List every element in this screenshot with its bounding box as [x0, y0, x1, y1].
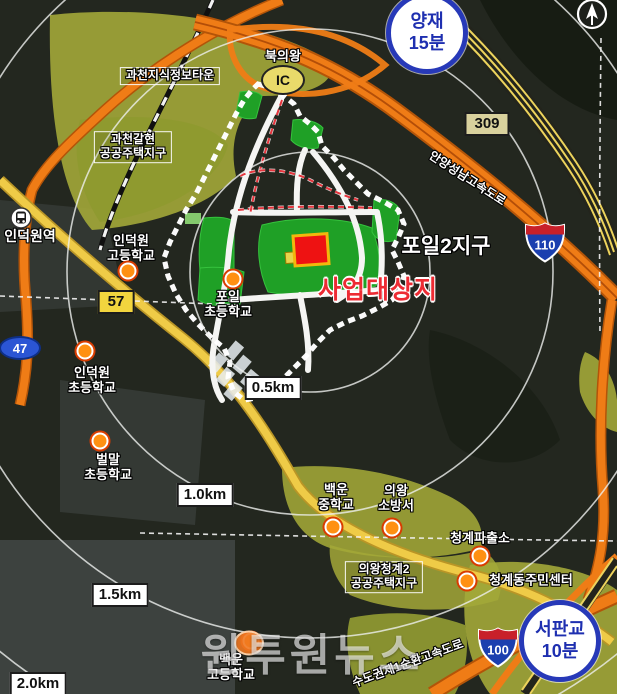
school-label-poil-elem: 포일 초등학교: [204, 290, 252, 320]
school-label-beolmal-elem: 벌말 초등학교: [84, 453, 132, 483]
zone-label-gwacheon-galhyeon: 과천갈현 공공주택지구: [94, 131, 172, 163]
marker-indeogwon-high: [120, 263, 137, 280]
label-cheonggye-community-center: 청계동주민센터: [489, 574, 573, 589]
school-label-line: 초등학교: [68, 381, 116, 396]
route-shield-309: 309: [464, 112, 509, 136]
school-label-line: 고등학교: [107, 249, 155, 264]
school-label-line: 백운: [318, 483, 354, 498]
school-label-line: 중학교: [318, 498, 354, 513]
interchange-ic-sign: IC: [261, 65, 305, 95]
school-label-line: 초등학교: [204, 305, 252, 320]
school-label-indeogwon-high: 인덕원 고등학교: [107, 234, 155, 264]
marker-cheonggye-police: [472, 548, 489, 565]
zone-label-line: 과천갈현: [100, 133, 166, 147]
interchange-name: 북의왕: [265, 50, 301, 65]
svg-text:100: 100: [487, 643, 509, 658]
svg-text:110: 110: [535, 238, 556, 253]
map-canvas: 과천지식정보타운 과천갈현 공공주택지구 의왕청계2 공공주택지구 북의왕 IC…: [0, 0, 617, 694]
route-shield-57: 57: [98, 290, 135, 314]
ring-label-05km: 0.5km: [245, 376, 302, 400]
station-label-indeogwon: 인덕원역: [4, 228, 56, 244]
badge-seopangyo-10min: 서판교 10분: [519, 600, 601, 682]
marker-beolmal-elem: [92, 433, 109, 450]
marker-uiwang-fire-station: [384, 520, 401, 537]
ring-label-10km: 1.0km: [177, 483, 234, 507]
label-uiwang-fire-station: 의왕 소방서: [378, 484, 414, 514]
site-title: 사업대상지: [318, 270, 438, 306]
marker-indeogwon-elem: [77, 343, 94, 360]
school-label-line: 벌말: [84, 453, 132, 468]
marker-baegun-mid: [325, 519, 342, 536]
route-shield-47: 47: [0, 336, 41, 360]
marker-cheonggye-center: [459, 573, 476, 590]
badge-line: 양재: [410, 11, 443, 33]
zone-label-line: 의왕청계2: [351, 563, 417, 577]
school-label-line: 인덕원: [68, 366, 116, 381]
school-label-baegun-mid: 백운 중학교: [318, 483, 354, 513]
ring-label-15km: 1.5km: [92, 583, 149, 607]
zone-label-uiwang-cheonggye2: 의왕청계2 공공주택지구: [345, 561, 423, 593]
badge-line: 15분: [409, 33, 446, 55]
compass-icon: [578, 0, 606, 28]
label-cheonggye-police: 청계파출소: [450, 532, 510, 547]
expressway-shield-100: 100: [476, 628, 520, 673]
zone-label-line: 공공주택지구: [100, 147, 166, 161]
site-light-green: [185, 213, 201, 224]
school-label-indeogwon-elem: 인덕원 초등학교: [68, 366, 116, 396]
ring-label-20km: 2.0km: [10, 672, 67, 694]
watermark-text: 원투원뉴스: [201, 619, 423, 683]
marker-poil-elem: [225, 271, 242, 288]
school-label-line: 포일: [204, 290, 252, 305]
expressway-shield-110: 110: [523, 223, 567, 268]
zone-label-line: 공공주택지구: [351, 577, 417, 591]
subway-station-icon: [11, 208, 31, 228]
label-line: 소방서: [378, 499, 414, 514]
badge-line: 10분: [542, 641, 579, 663]
city-patch-sw: [0, 540, 235, 694]
badge-line: 서판교: [535, 619, 585, 641]
zone-label-gwacheon-jisik: 과천지식정보타운: [120, 67, 220, 85]
school-label-line: 초등학교: [84, 468, 132, 483]
district-label-poil2: 포일2지구: [402, 235, 491, 259]
label-line: 의왕: [378, 484, 414, 499]
school-label-line: 인덕원: [107, 234, 155, 249]
